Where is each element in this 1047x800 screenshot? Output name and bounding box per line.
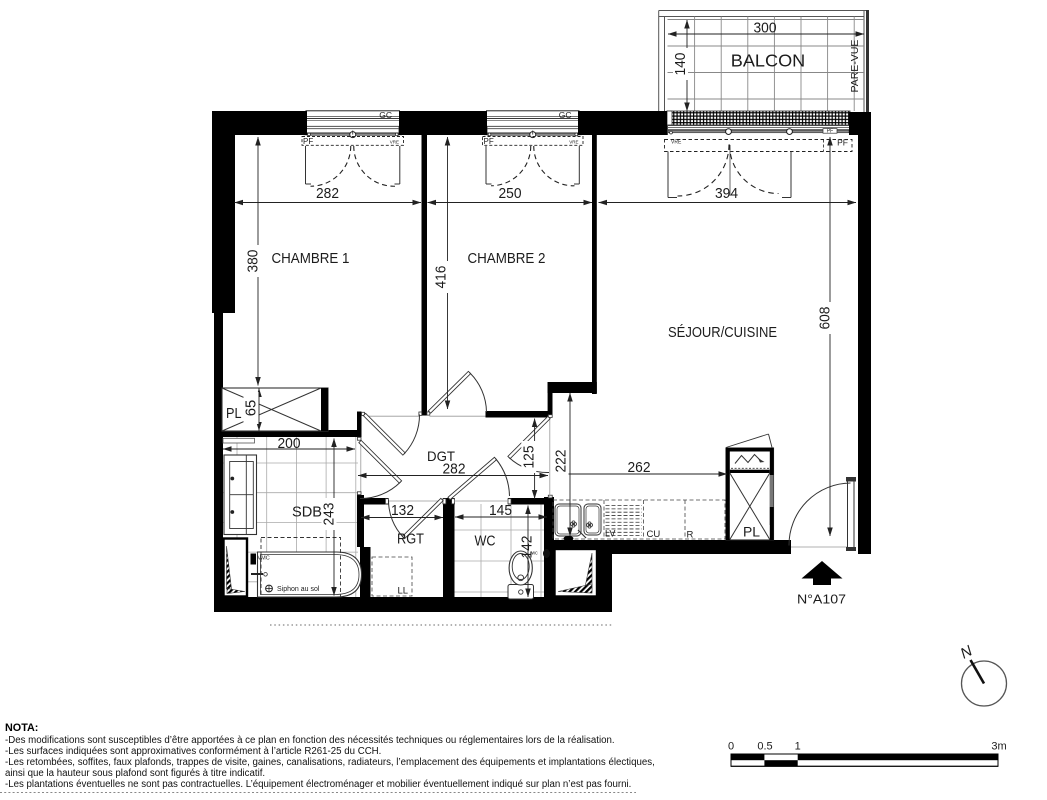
svg-text:ainsi que la hauteur sous plaf: ainsi que la hauteur sous plafond sont f… <box>5 768 265 779</box>
svg-text:PL: PL <box>226 405 242 422</box>
svg-text:-Les retombées, soffites, faux: -Les retombées, soffites, faux plafonds,… <box>5 757 655 768</box>
svg-text:PARE-VUE: PARE-VUE <box>849 40 861 93</box>
svg-text:SDB: SDB <box>292 504 322 521</box>
svg-text:200: 200 <box>278 436 301 452</box>
svg-text:282: 282 <box>316 186 339 202</box>
svg-text:VRE: VRE <box>569 139 578 144</box>
svg-text:WC: WC <box>475 533 496 550</box>
svg-text:R: R <box>687 530 694 541</box>
svg-text:PF: PF <box>837 138 848 148</box>
svg-text:243: 243 <box>322 503 338 526</box>
svg-text:142: 142 <box>520 536 536 559</box>
svg-text:250: 250 <box>499 186 522 202</box>
svg-text:CU: CU <box>647 529 661 540</box>
svg-text:145: 145 <box>489 503 512 519</box>
svg-text:SÉJOUR/CUISINE: SÉJOUR/CUISINE <box>668 324 777 341</box>
svg-text:222: 222 <box>554 450 570 473</box>
svg-text:-Les plantations éventuelles n: -Les plantations éventuelles ne sont pas… <box>5 779 631 790</box>
svg-text:3m: 3m <box>991 741 1006 753</box>
svg-text:NOTA:: NOTA: <box>5 722 38 734</box>
svg-text:Siphon au sol: Siphon au sol <box>277 586 320 593</box>
svg-text:CHAMBRE 1: CHAMBRE 1 <box>272 250 350 267</box>
svg-text:VMC: VMC <box>258 556 270 562</box>
svg-text:394: 394 <box>715 186 738 202</box>
svg-text:BALCON: BALCON <box>731 51 806 71</box>
svg-text:262: 262 <box>628 460 651 476</box>
svg-text:DGT: DGT <box>427 448 455 464</box>
svg-text:PL: PL <box>743 524 760 540</box>
svg-text:N°A107: N°A107 <box>797 592 846 607</box>
svg-text:65: 65 <box>244 400 260 416</box>
svg-text:PF: PF <box>303 137 313 146</box>
svg-text:1: 1 <box>795 741 801 753</box>
svg-text:0: 0 <box>728 741 734 753</box>
svg-text:CHAMBRE 2: CHAMBRE 2 <box>468 250 546 267</box>
svg-text:125: 125 <box>522 446 538 469</box>
svg-text:VRE: VRE <box>390 139 399 144</box>
svg-text:0.5: 0.5 <box>757 741 772 753</box>
svg-text:-Des modifications sont suscep: -Des modifications sont susceptibles d’ê… <box>5 735 615 746</box>
svg-text:RGT: RGT <box>397 532 424 548</box>
svg-text:LL: LL <box>398 586 409 597</box>
svg-text:140: 140 <box>673 53 689 76</box>
svg-text:608: 608 <box>818 307 834 330</box>
svg-text:PF: PF <box>827 129 833 135</box>
svg-text:380: 380 <box>246 250 262 273</box>
svg-text:PF: PF <box>484 137 494 146</box>
svg-text:416: 416 <box>434 266 450 289</box>
svg-text:132: 132 <box>391 503 414 519</box>
svg-text:VRE: VRE <box>671 140 682 146</box>
svg-text:300: 300 <box>754 21 777 37</box>
svg-text:-Les surfaces indiquées sont a: -Les surfaces indiquées sont approximati… <box>5 746 381 757</box>
svg-text:LV: LV <box>605 529 615 539</box>
